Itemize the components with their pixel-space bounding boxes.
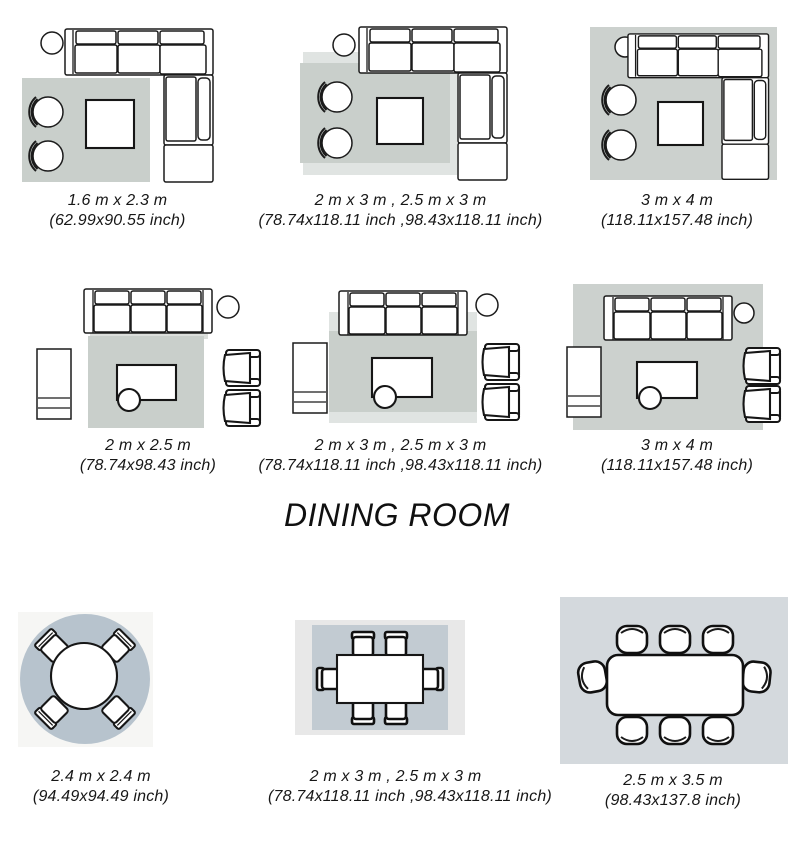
dining-chair-icon — [577, 660, 609, 694]
living-corner-medium-diagram — [262, 18, 532, 190]
panel-living-sofa-medium — [283, 282, 533, 434]
size-inches: (94.49x94.49 inch) — [3, 787, 199, 807]
size-inches: (78.74x118.11 inch ,98.43x118.11 inch) — [258, 211, 543, 231]
living-corner-large-diagram — [550, 18, 800, 190]
armchair-icon — [483, 384, 520, 420]
size-caption: 2.4 m x 2.4 m (94.49x94.49 inch) — [3, 767, 199, 806]
sideboard-icon — [567, 347, 601, 417]
sofa-icon — [84, 289, 212, 333]
size-metric: 1.6 m x 2.3 m — [10, 191, 225, 211]
living-sofa-large-diagram — [558, 282, 788, 434]
size-caption: 2 m x 2.5 m (78.74x98.43 inch) — [28, 436, 268, 475]
side-table-icon — [118, 389, 140, 411]
dining-chair-icon — [385, 632, 407, 656]
living-sofa-small-diagram — [28, 282, 268, 434]
dining-chair-icon — [352, 632, 374, 656]
barrel-chair-icon — [602, 130, 636, 160]
barrel-chair-icon — [318, 128, 352, 158]
size-caption: 2 m x 3 m , 2.5 m x 3 m (78.74x118.11 in… — [258, 191, 543, 230]
size-metric: 2.4 m x 2.4 m — [3, 767, 199, 787]
dining-chair-icon — [660, 717, 690, 744]
living-corner-small-diagram — [8, 18, 228, 190]
armchair-icon — [744, 348, 781, 384]
size-inches: (78.74x118.11 inch ,98.43x118.11 inch) — [258, 456, 543, 476]
size-inches: (118.11x157.48 inch) — [552, 211, 800, 231]
size-inches: (62.99x90.55 inch) — [10, 211, 225, 231]
size-caption: 3 m x 4 m (118.11x157.48 inch) — [552, 436, 800, 475]
dining-chair-icon — [703, 717, 733, 744]
plant-icon — [217, 296, 239, 318]
dining-chair-icon — [660, 626, 690, 653]
size-metric: 2.5 m x 3.5 m — [553, 771, 793, 791]
panel-living-corner-medium — [262, 18, 532, 190]
size-caption: 2.5 m x 3.5 m (98.43x137.8 inch) — [553, 771, 793, 810]
coffee-table-icon — [86, 100, 134, 148]
armchair-icon — [744, 386, 781, 422]
size-metric: 3 m x 4 m — [552, 191, 800, 211]
plant-icon — [476, 294, 498, 316]
living-sofa-medium-diagram — [283, 282, 533, 434]
dining-chair-icon — [617, 626, 647, 653]
armchair-icon — [224, 390, 261, 426]
sofa-icon — [339, 291, 467, 335]
panel-living-sofa-large — [558, 282, 788, 434]
round-dining-table-icon — [51, 643, 117, 709]
size-metric: 2 m x 3 m , 2.5 m x 3 m — [268, 767, 523, 787]
sofa-icon — [604, 296, 732, 340]
panel-living-sofa-small — [28, 282, 268, 434]
coffee-table-icon — [658, 102, 703, 145]
barrel-chair-icon — [602, 85, 636, 115]
coffee-table-icon — [377, 98, 423, 144]
armchair-icon — [224, 350, 261, 386]
armchair-icon — [483, 344, 520, 380]
dining-eight-seat-diagram — [560, 597, 788, 764]
size-metric: 2 m x 3 m , 2.5 m x 3 m — [258, 436, 543, 456]
dining-round-diagram — [18, 612, 153, 747]
dining-table-icon — [607, 655, 743, 715]
size-metric: 2 m x 3 m , 2.5 m x 3 m — [258, 191, 543, 211]
barrel-chair-icon — [29, 141, 63, 171]
side-table-icon — [374, 386, 396, 408]
panel-living-corner-large — [550, 18, 800, 190]
plant-icon — [41, 32, 63, 54]
size-caption: 2 m x 3 m , 2.5 m x 3 m (78.74x118.11 in… — [268, 767, 523, 806]
size-inches: (98.43x137.8 inch) — [553, 791, 793, 811]
size-inches: (78.74x98.43 inch) — [28, 456, 268, 476]
dining-room-heading: DINING ROOM — [150, 497, 644, 534]
rug-size-guide: 1.6 m x 2.3 m (62.99x90.55 inch) 2 m x 3… — [0, 0, 800, 842]
dining-table-icon — [337, 655, 423, 703]
barrel-chair-icon — [318, 82, 352, 112]
size-inches: (118.11x157.48 inch) — [552, 456, 800, 476]
size-caption: 1.6 m x 2.3 m (62.99x90.55 inch) — [10, 191, 225, 230]
side-table-icon — [639, 387, 661, 409]
panel-dining-eight-seat — [560, 597, 788, 764]
size-caption: 3 m x 4 m (118.11x157.48 inch) — [552, 191, 800, 230]
sideboard-icon — [37, 349, 71, 419]
panel-living-corner-small — [8, 18, 228, 190]
panel-dining-round — [18, 612, 153, 747]
size-inches: (78.74x118.11 inch ,98.43x118.11 inch) — [268, 787, 523, 807]
dining-chair-icon — [742, 661, 772, 694]
plant-icon — [333, 34, 355, 56]
panel-dining-six-seat — [295, 620, 465, 735]
sideboard-icon — [293, 343, 327, 413]
dining-six-seat-diagram — [295, 620, 465, 735]
plant-icon — [734, 303, 754, 323]
dining-chair-icon — [617, 717, 647, 744]
size-metric: 2 m x 2.5 m — [28, 436, 268, 456]
size-caption: 2 m x 3 m , 2.5 m x 3 m (78.74x118.11 in… — [258, 436, 543, 475]
dining-chair-icon — [703, 626, 733, 653]
barrel-chair-icon — [29, 97, 63, 127]
size-metric: 3 m x 4 m — [552, 436, 800, 456]
